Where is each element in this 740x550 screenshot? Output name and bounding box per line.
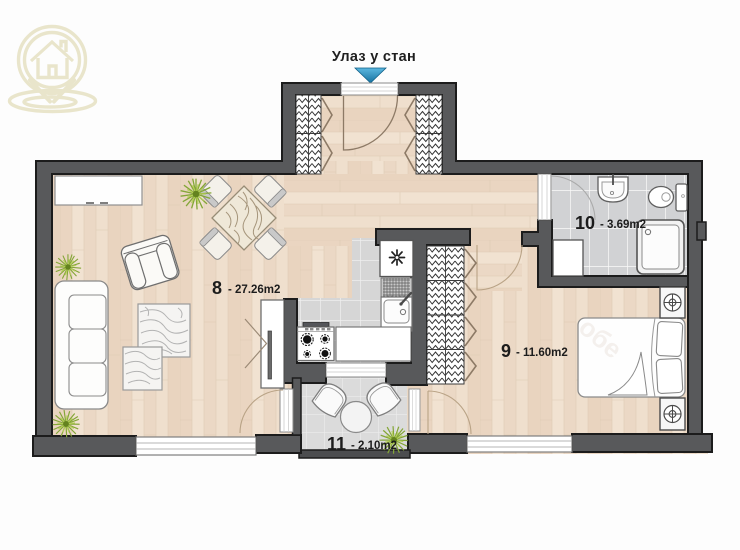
svg-text:8: 8 <box>212 278 222 298</box>
svg-text:11: 11 <box>327 434 346 454</box>
svg-text:- 11.60m2: - 11.60m2 <box>516 347 568 359</box>
svg-text:Улаз у стан: Улаз у стан <box>332 49 416 65</box>
svg-text:- 3.69m2: - 3.69m2 <box>600 219 646 231</box>
svg-text:10: 10 <box>575 213 595 233</box>
svg-text:- 2.10m2: - 2.10m2 <box>351 440 397 452</box>
svg-text:9: 9 <box>501 341 511 361</box>
svg-text:- 27.26m2: - 27.26m2 <box>228 284 280 296</box>
